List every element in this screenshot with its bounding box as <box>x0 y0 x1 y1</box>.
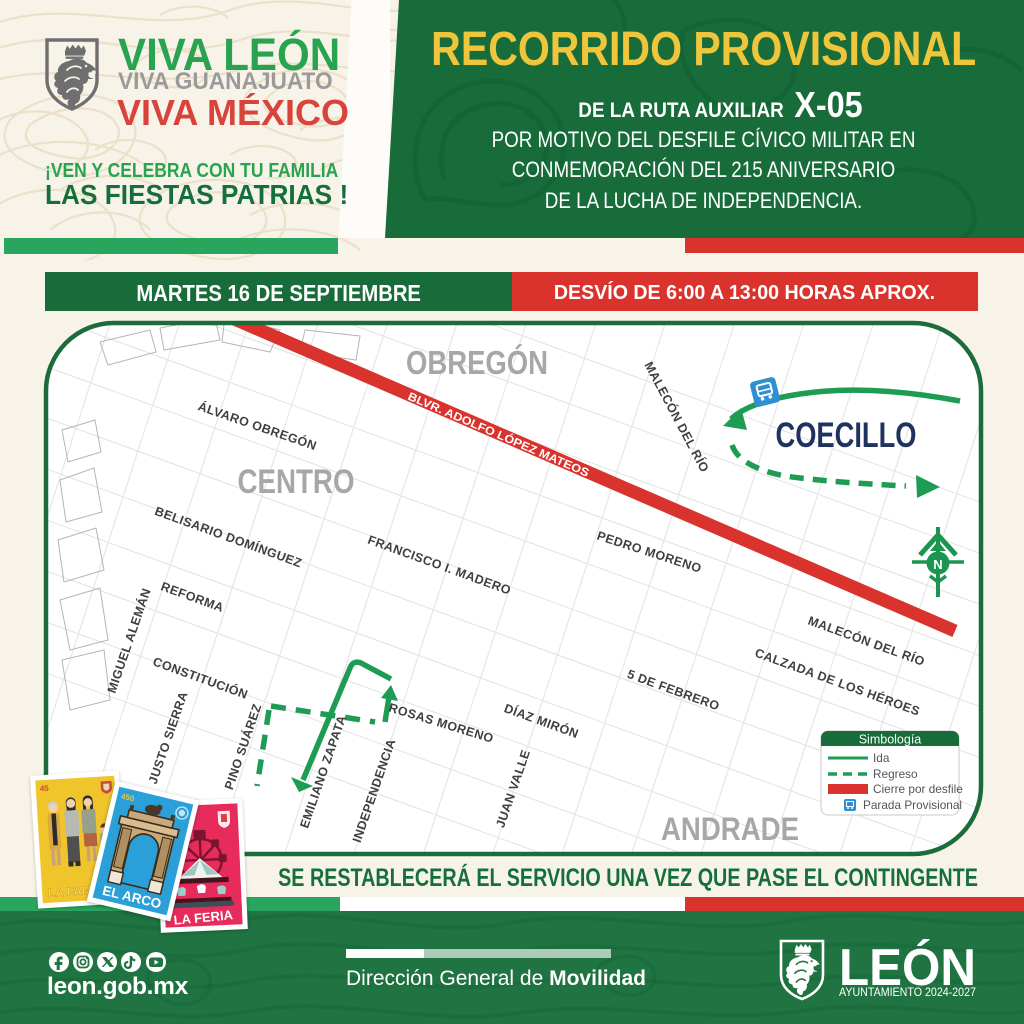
svg-text:45: 45 <box>40 784 50 794</box>
svg-text:ANDRADE: ANDRADE <box>661 811 799 847</box>
svg-text:Parada Provisional: Parada Provisional <box>863 798 962 812</box>
svg-text:CENTRO: CENTRO <box>238 463 355 501</box>
svg-text:N: N <box>933 557 942 572</box>
svg-text:Regreso: Regreso <box>873 767 918 781</box>
svg-text:Ida: Ida <box>873 751 890 765</box>
svg-text:OBREGÓN: OBREGÓN <box>406 344 548 381</box>
svg-text:COECILLO: COECILLO <box>776 416 917 455</box>
svg-text:Cierre por desfile: Cierre por desfile <box>873 782 963 796</box>
svg-text:Simbología: Simbología <box>859 733 922 747</box>
svg-text:AYUNTAMIENTO 2024-2027: AYUNTAMIENTO 2024-2027 <box>839 986 976 999</box>
